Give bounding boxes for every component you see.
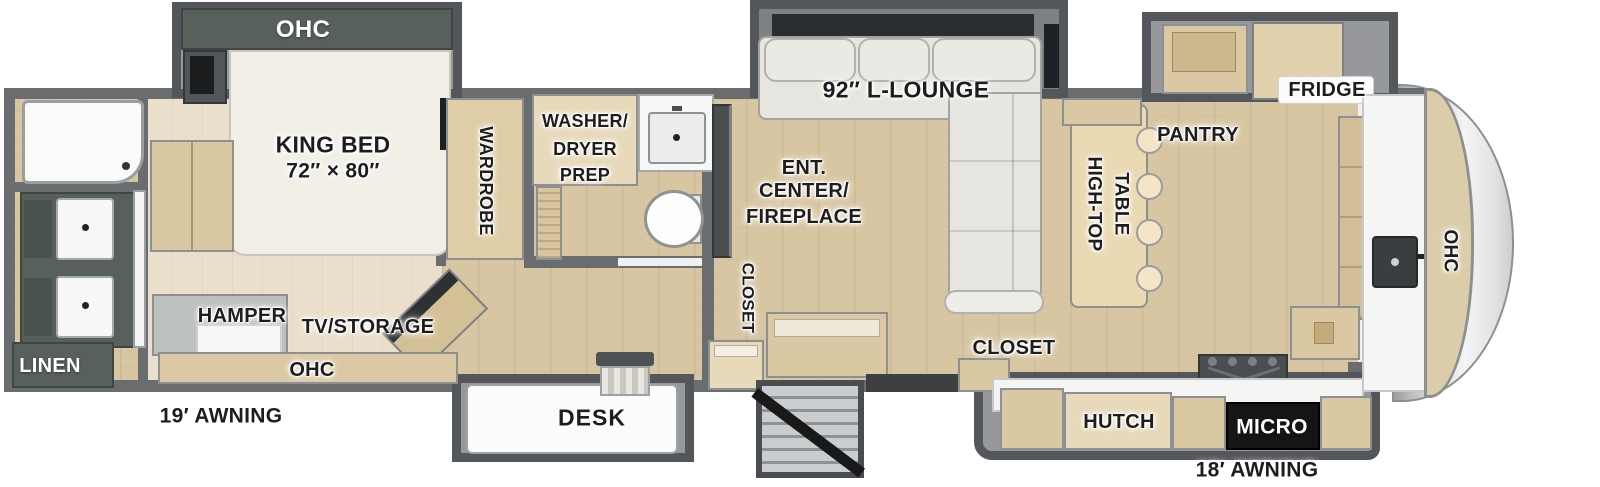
high-top-chair <box>1136 173 1163 200</box>
midbath-sliding-door <box>618 258 702 266</box>
high-top-label-line2: TABLE <box>1112 172 1131 235</box>
sink-drain <box>82 302 89 309</box>
midbath-sink-drain <box>673 134 680 141</box>
kitchen-slide-cabinet <box>1320 396 1372 450</box>
bedroom-dresser <box>150 140 234 252</box>
front-awning-label: 18′ AWNING <box>1196 460 1319 481</box>
fridge-label: FRIDGE <box>1288 80 1365 100</box>
bedroom-slide-window-left <box>190 56 214 94</box>
sofa-back-cushion <box>858 38 930 82</box>
high-top-chair <box>1136 219 1163 246</box>
entry-cabinet-shelf <box>774 319 880 337</box>
stove-burner <box>1268 357 1277 366</box>
pantry-cabinets <box>1062 98 1142 126</box>
closet-cabinet-top <box>714 345 758 357</box>
midbath-faucet <box>672 106 682 111</box>
entry-cabinet <box>766 312 888 378</box>
ent-center-label-line2: CENTER/ <box>759 181 849 201</box>
ent-center-label-line3: FIREPLACE <box>746 207 862 227</box>
king-bed-label-line2: 72″ × 80″ <box>286 161 379 182</box>
tv-storage-label: TV/STORAGE <box>302 317 435 337</box>
shower-drain <box>122 162 130 170</box>
wardrobe-label: WARDROBE <box>477 126 495 235</box>
desk-label: DESK <box>558 407 626 430</box>
high-top-label-line1: HIGH-TOP <box>1085 157 1104 252</box>
lounge-window-right <box>1044 24 1059 88</box>
desk-chair-seat <box>600 366 650 396</box>
bedroom-ohc-label: OHC <box>276 18 330 42</box>
mid-closet-label: CLOSET <box>740 263 757 334</box>
ent-center-fireplace-unit <box>712 104 732 258</box>
stove-burner <box>1208 357 1217 366</box>
front-ohc-label: OHC <box>1441 229 1460 272</box>
pantry-label: PANTRY <box>1157 125 1239 145</box>
toilet-bowl <box>644 190 704 248</box>
island-door <box>1314 322 1334 344</box>
high-top-chair <box>1136 265 1163 292</box>
louver-door <box>536 186 562 260</box>
hutch-label: HUTCH <box>1083 412 1155 432</box>
stove-burner <box>1228 357 1237 366</box>
kitchen-slide-cabinet <box>1000 388 1064 450</box>
kitchen-closet-label: CLOSET <box>973 338 1056 358</box>
shower <box>22 100 144 184</box>
micro-label: MICRO <box>1236 417 1308 438</box>
vanity-mirror <box>24 200 52 258</box>
pantry-slide-cabinet <box>1162 24 1248 94</box>
stove-burner <box>1248 357 1257 366</box>
hamper-label: HAMPER <box>198 306 286 326</box>
bedroom-ohc-cabinet-label: OHC <box>289 360 334 380</box>
washer-dryer-label-line2: DRYER <box>553 140 617 158</box>
sofa-back-cushion <box>764 38 856 82</box>
kitchen-island <box>1290 306 1360 360</box>
rear-awning-label: 19′ AWNING <box>160 406 283 427</box>
washer-dryer-label-line3: PREP <box>560 166 610 184</box>
kitchen-slide-cabinet <box>1172 396 1226 450</box>
sink-drain <box>82 224 89 231</box>
ent-center-label-line1: ENT. <box>782 158 827 178</box>
rv-floorplan: OHC KING BED 72″ × 80″ WARDROBE HAMPER T… <box>0 0 1600 487</box>
l-lounge-sofa-chaise <box>948 92 1042 304</box>
vanity-mirror <box>24 278 52 336</box>
desk-chair-back <box>596 352 654 366</box>
entry-counter <box>866 374 962 392</box>
washer-dryer-label-line1: WASHER/ <box>542 112 628 130</box>
lounge-label: 92″ L-LOUNGE <box>823 79 990 102</box>
king-bed-label-line1: KING BED <box>276 134 391 157</box>
pantry-slide-cabinet-panel <box>1172 32 1236 72</box>
bathroom-door <box>133 190 146 348</box>
linen-label: LINEN <box>19 356 81 376</box>
sofa-back-cushion <box>932 38 1036 82</box>
sofa-armrest <box>944 290 1044 314</box>
kitchen-sink-drain <box>1391 258 1399 266</box>
